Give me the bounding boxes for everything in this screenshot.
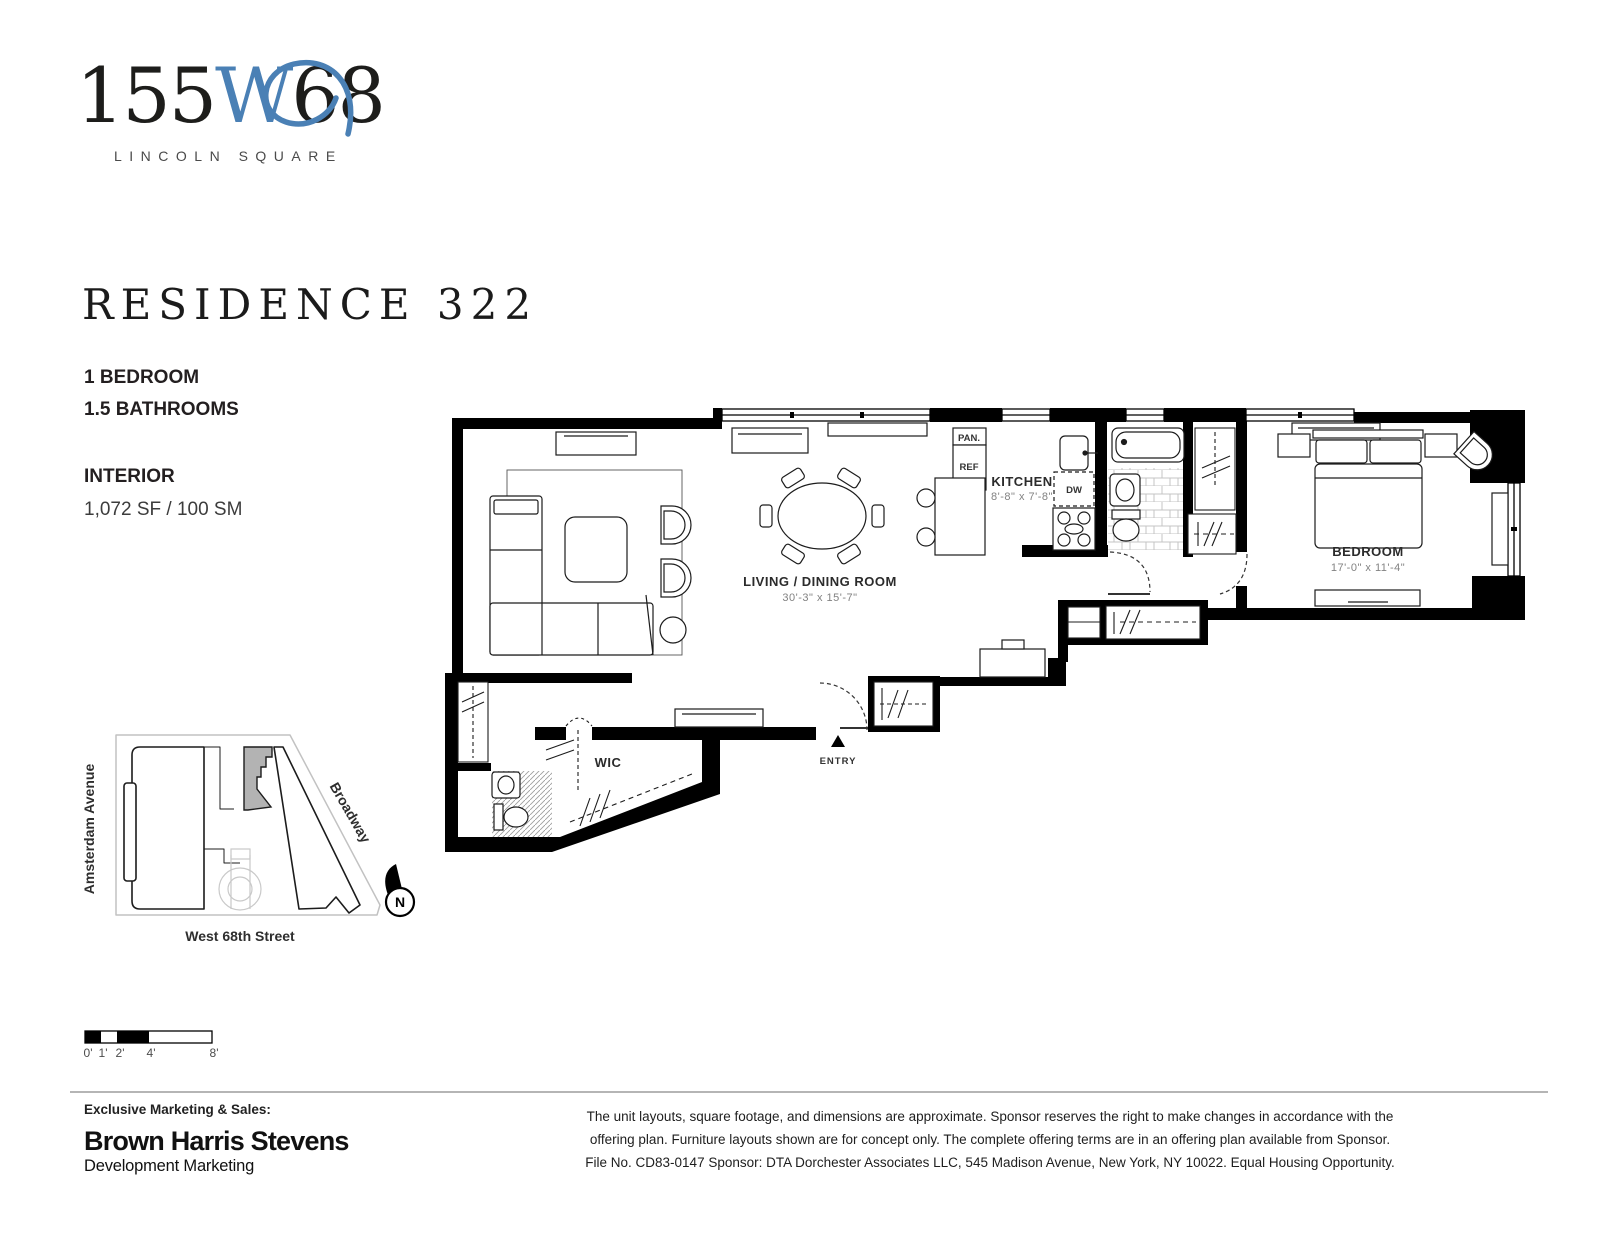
street-label-broadway: Broadway (327, 780, 374, 846)
disclaimer-text: The unit layouts, square footage, and di… (555, 1105, 1425, 1174)
floorplan-drawing: LIVING / DINING ROOM 30'-3" x 15'-7" KIT… (430, 390, 1532, 868)
wic-label: WIC (595, 755, 622, 770)
logo-suffix: 68 (291, 51, 384, 140)
north-label: N (395, 894, 405, 910)
north-arrow-icon: N (385, 864, 414, 916)
scale-tick-8: 8' (210, 1046, 219, 1060)
logo-tagline: LINCOLN SQUARE (114, 148, 436, 164)
disclaimer-line: File No. CD83-0147 Sponsor: DTA Dorchest… (555, 1151, 1425, 1174)
counter-stool (917, 528, 935, 546)
bedroom-console (1492, 493, 1508, 565)
dishwasher-label: DW (1066, 485, 1082, 496)
scale-tick-1: 1' (99, 1046, 108, 1060)
residence-specs: 1 BEDROOM 1.5 BATHROOMS (84, 362, 239, 426)
logo-w-letter: W (215, 51, 291, 140)
interior-label: INTERIOR (84, 460, 242, 493)
street-label-west68: West 68th Street (185, 928, 295, 944)
sofa (490, 603, 653, 655)
logo-wordmark: 155W68 (76, 58, 436, 134)
refrigerator-label: REF (960, 462, 979, 473)
disclaimer-line: offering plan. Furniture layouts shown a… (555, 1128, 1425, 1151)
hall-console (980, 649, 1045, 677)
scale-bar: 0' 1' 2' 4' 8' (84, 1026, 264, 1062)
entry-door-arc (820, 683, 867, 730)
bedroom-dims: 17'-0" x 11'-4" (1331, 562, 1405, 574)
counter-stool (917, 489, 935, 507)
kitchen-dims: 8'-8" x 7'-8" (991, 491, 1053, 503)
building-footprint (124, 747, 360, 913)
dining-chair (780, 543, 805, 565)
site-map: N Amsterdam Avenue Broadway West 68th St… (68, 703, 428, 953)
sales-label: Exclusive Marketing & Sales: (84, 1102, 349, 1117)
entry-label: ENTRY (820, 756, 857, 767)
nightstand (1425, 434, 1457, 457)
living-room-label: LIVING / DINING ROOM (743, 574, 897, 589)
stove (1053, 508, 1095, 550)
footer-brokerage-block: Exclusive Marketing & Sales: Brown Harri… (84, 1102, 349, 1176)
unit-location-highlight (244, 747, 272, 810)
bed (1313, 430, 1423, 548)
kitchen-label: KITCHEN (991, 474, 1052, 489)
brokerage-name: Brown Harris Stevens (84, 1126, 349, 1157)
disclaimer-line: The unit layouts, square footage, and di… (555, 1105, 1425, 1128)
interior-area-value: 1,072 SF / 100 SM (84, 493, 242, 526)
logo-prefix: 155 (76, 51, 215, 140)
ptac-unit (732, 428, 808, 453)
street-label-amsterdam: Amsterdam Avenue (81, 764, 97, 895)
dining-chair (780, 467, 805, 489)
nightstand (1278, 434, 1310, 457)
brokerage-division: Development Marketing (84, 1157, 349, 1176)
spec-bathrooms: 1.5 BATHROOMS (84, 394, 239, 426)
page-title: RESIDENCE 322 (82, 280, 538, 329)
kitchen-peninsula (935, 478, 985, 555)
scale-tick-4: 4' (147, 1046, 156, 1060)
driveway (219, 849, 261, 910)
dresser (1315, 590, 1420, 606)
toilet (1112, 510, 1140, 541)
coffee-table (565, 517, 627, 582)
hall-console-box (1002, 640, 1024, 649)
entry-marker-icon (831, 735, 845, 747)
foyer-console (675, 709, 763, 727)
brand-logo: 155W68 LINCOLN SQUARE (76, 58, 436, 164)
pantry-label: PAN. (958, 433, 980, 444)
window-sill (828, 423, 927, 436)
scale-tick-2: 2' (116, 1046, 125, 1060)
living-room-dims: 30'-3" x 15'-7" (782, 592, 857, 604)
interior-area-block: INTERIOR 1,072 SF / 100 SM (84, 460, 242, 526)
dining-chair (872, 505, 884, 527)
dining-chair (760, 505, 772, 527)
hall-door-arc (1110, 552, 1150, 592)
bedroom-label: BEDROOM (1332, 544, 1403, 559)
footer-divider (70, 1091, 1548, 1093)
spec-bedrooms: 1 BEDROOM (84, 362, 239, 394)
dining-table (778, 483, 866, 549)
side-table (660, 617, 686, 643)
scale-tick-0: 0' (84, 1046, 92, 1060)
